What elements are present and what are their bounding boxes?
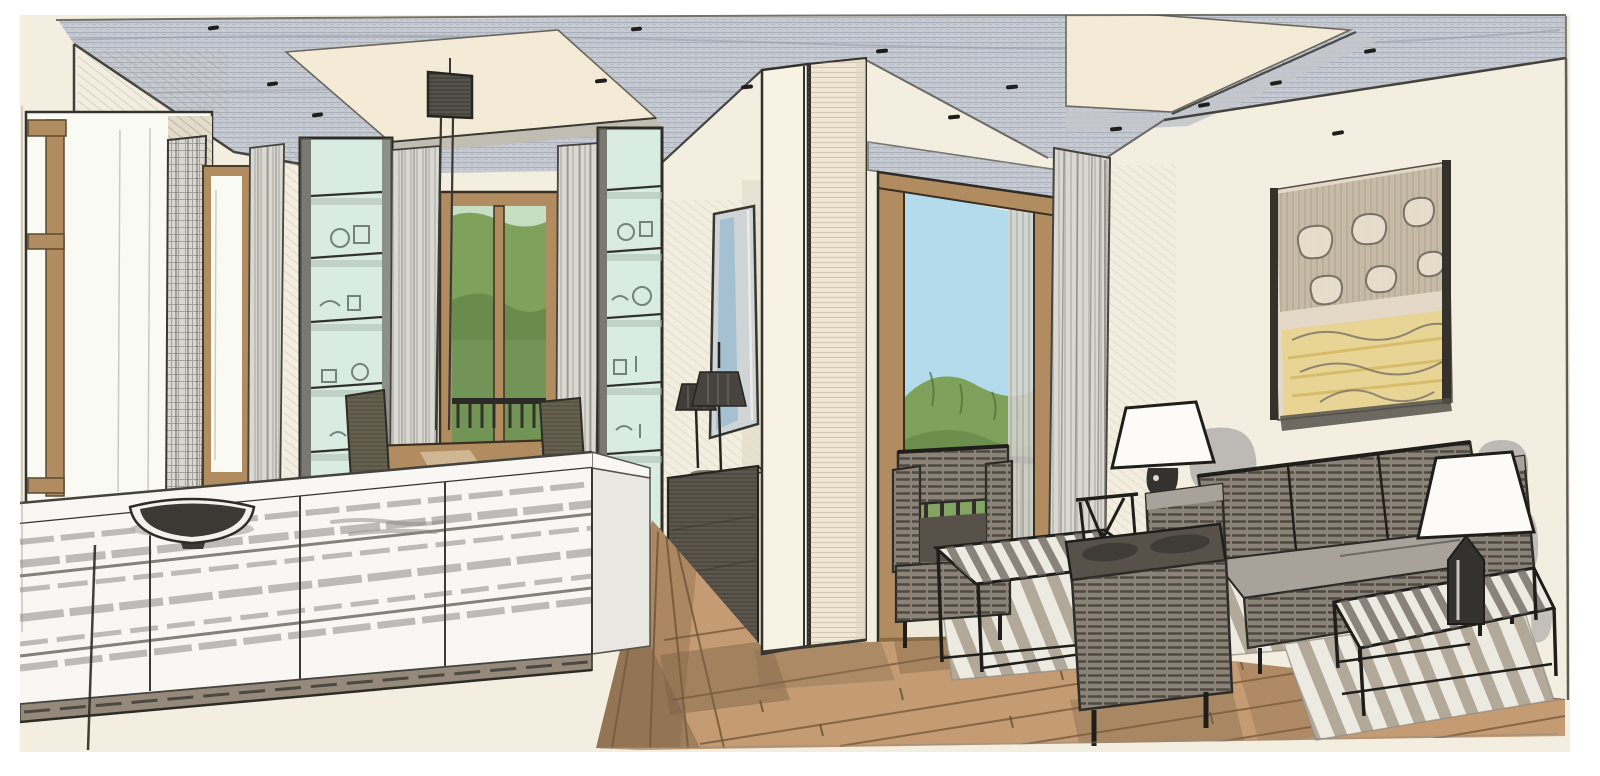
- sketch-page: Hand-drawn interior design sketch of an …: [0, 0, 1600, 776]
- curtain-left-2: [248, 144, 284, 510]
- column: [762, 58, 866, 654]
- curtain-plaid: [166, 136, 206, 514]
- interior-sketch: [0, 0, 1600, 776]
- window-left-inner: [198, 166, 256, 505]
- artwork: [1270, 160, 1452, 431]
